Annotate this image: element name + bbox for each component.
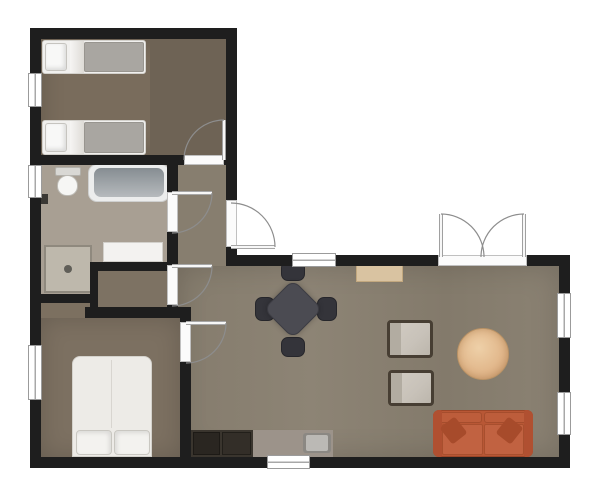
wall-left-4 bbox=[30, 400, 41, 457]
window-living-right-1 bbox=[557, 293, 571, 338]
bathroom-vanity bbox=[103, 242, 163, 262]
single-bed-2-pillow bbox=[45, 123, 67, 152]
threshold-bedroom2-door bbox=[180, 322, 191, 362]
window-kitchen-bottom bbox=[267, 455, 310, 469]
single-bed-1-fold bbox=[70, 41, 84, 73]
wall-left-1 bbox=[30, 39, 41, 73]
window-bedroom2-left bbox=[28, 345, 42, 400]
window-living-right-2 bbox=[557, 392, 571, 435]
wall-bathroom-bottom bbox=[30, 294, 98, 303]
wall-bottom-1 bbox=[30, 457, 267, 468]
wall-top bbox=[30, 28, 237, 39]
window-bedroom1-left bbox=[28, 73, 42, 107]
single-bed-1-duvet bbox=[84, 42, 144, 72]
sofa-armrest-left bbox=[433, 410, 442, 457]
bathtub-basin bbox=[94, 168, 164, 197]
wall-bathroom-east-1 bbox=[167, 165, 178, 192]
entrance-door-swing-arc bbox=[231, 203, 275, 247]
double-bed-pillow-right bbox=[114, 430, 150, 455]
wall-living-top-2 bbox=[336, 255, 438, 266]
wall-bedroom2-top bbox=[85, 307, 191, 318]
double-bed-pillow-left bbox=[76, 430, 112, 455]
threshold-french-doors bbox=[438, 255, 527, 266]
threshold-closet-door bbox=[167, 265, 178, 305]
kitchen-oven bbox=[222, 432, 251, 455]
closet-floor bbox=[98, 271, 167, 307]
wall-bedroom1-bottom-1 bbox=[30, 155, 184, 165]
shower-drain bbox=[64, 265, 72, 273]
window-bathroom-left bbox=[28, 165, 42, 198]
bedroom2-floor-strip bbox=[41, 303, 90, 318]
armchair-1-throw bbox=[390, 323, 401, 355]
wall-entry-east-1 bbox=[226, 39, 237, 200]
single-bed-2-duvet bbox=[84, 122, 144, 153]
sofa-back-left bbox=[437, 412, 482, 423]
round-rug bbox=[457, 328, 509, 380]
threshold-bathroom-door bbox=[167, 192, 178, 232]
wall-right-1 bbox=[559, 255, 570, 293]
towel-radiator bbox=[41, 194, 48, 204]
hallway-floor bbox=[178, 165, 226, 266]
single-bed-1-pillow bbox=[45, 43, 67, 71]
armchair-2-throw bbox=[391, 373, 402, 403]
single-bed-2-fold bbox=[70, 121, 84, 154]
window-living-top bbox=[292, 253, 336, 267]
threshold-bedroom1-door bbox=[184, 155, 224, 165]
wall-bathroom-east-2 bbox=[167, 232, 178, 265]
wall-bedroom2-east-2 bbox=[180, 362, 191, 457]
kitchen-cooktop bbox=[193, 432, 220, 455]
kitchen-sink-basin bbox=[306, 435, 328, 451]
threshold-entrance-door bbox=[226, 200, 237, 247]
wall-bedroom2-east-1 bbox=[180, 307, 191, 322]
wall-living-top-1 bbox=[237, 255, 292, 266]
dining-chair-east bbox=[317, 297, 337, 321]
sofa-armrest-right bbox=[524, 410, 533, 457]
wall-left-3 bbox=[30, 198, 41, 345]
bedroom1-floor-right bbox=[150, 39, 226, 155]
wall-closet-top bbox=[90, 262, 178, 271]
dining-chair-south bbox=[281, 337, 305, 357]
wall-right-2 bbox=[559, 338, 570, 392]
wall-bedroom1-bottom-2 bbox=[224, 155, 237, 165]
french-door-left-swing-arc bbox=[441, 214, 484, 257]
wall-entry-east-2 bbox=[226, 247, 237, 266]
wall-bottom-2 bbox=[310, 457, 570, 468]
double-bed-crease bbox=[111, 360, 112, 428]
toilet-bowl bbox=[57, 175, 78, 196]
floor-plan bbox=[0, 0, 604, 499]
french-door-right-swing-arc bbox=[481, 214, 524, 257]
